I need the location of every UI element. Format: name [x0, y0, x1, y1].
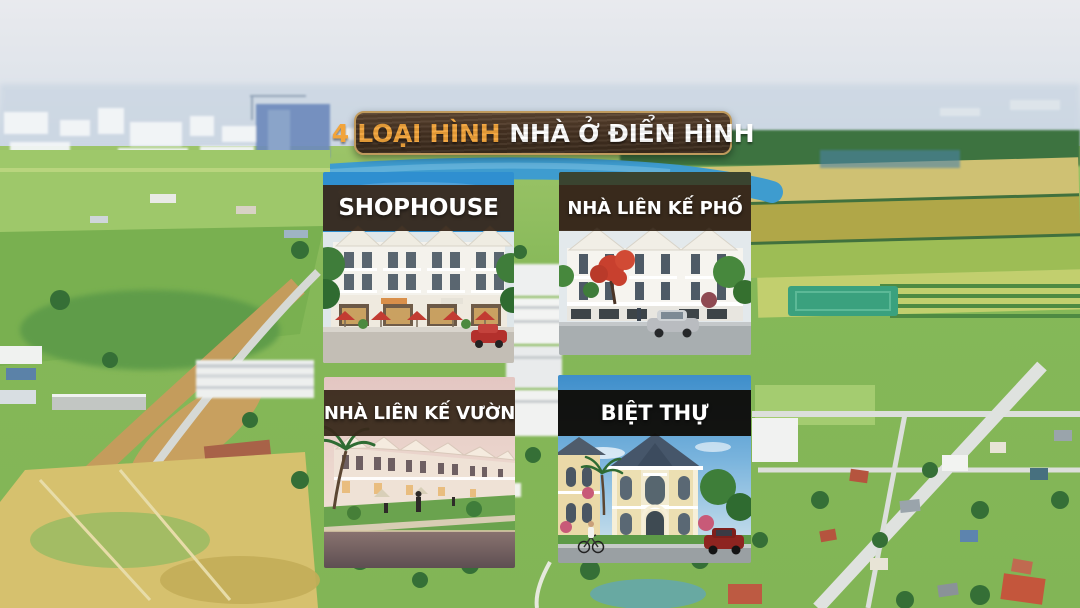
card-nha-lien-ke-pho: NHÀ LIÊN KẾ PHỐ — [559, 172, 751, 355]
left-edge-buildings — [0, 346, 42, 404]
person — [637, 308, 641, 321]
bridge — [52, 396, 146, 410]
aerial-photo-background — [0, 0, 1080, 608]
card-shophouse-band: SHOPHOUSE — [323, 185, 514, 231]
bottom-left-dirt — [0, 452, 320, 608]
card-biet-thu: BIỆT THỰ — [558, 375, 751, 563]
title-banner: 4 LOẠI HÌNH NHÀ Ở ĐIỂN HÌNH — [354, 111, 732, 155]
card-nha-lien-ke-vuon-label: NHÀ LIÊN KẾ VƯỜN — [324, 403, 515, 424]
card-biet-thu-band: BIỆT THỰ — [558, 390, 751, 436]
title-rest: NHÀ Ở ĐIỂN HÌNH — [509, 119, 754, 148]
card-nha-lien-ke-pho-label: NHÀ LIÊN KẾ PHỐ — [567, 198, 742, 219]
card-shophouse: SHOPHOUSE — [323, 172, 514, 363]
card-nha-lien-ke-pho-band: NHÀ LIÊN KẾ PHỐ — [559, 185, 751, 231]
sports-field — [788, 286, 898, 316]
construction-tower — [250, 96, 330, 158]
card-shophouse-label: SHOPHOUSE — [338, 195, 498, 221]
card-nha-lien-ke-vuon: NHÀ LIÊN KẾ VƯỜN — [324, 377, 515, 568]
title-highlight: 4 LOẠI HÌNH — [332, 119, 501, 148]
white-townhouse-row-left — [196, 360, 314, 398]
card-nha-lien-ke-vuon-band: NHÀ LIÊN KẾ VƯỜN — [324, 390, 515, 436]
card-biet-thu-label: BIỆT THỰ — [601, 401, 709, 425]
marketing-hero: 4 LOẠI HÌNH NHÀ Ở ĐIỂN HÌNH — [0, 0, 1080, 608]
road — [558, 548, 751, 563]
reflecting-water — [324, 531, 515, 568]
